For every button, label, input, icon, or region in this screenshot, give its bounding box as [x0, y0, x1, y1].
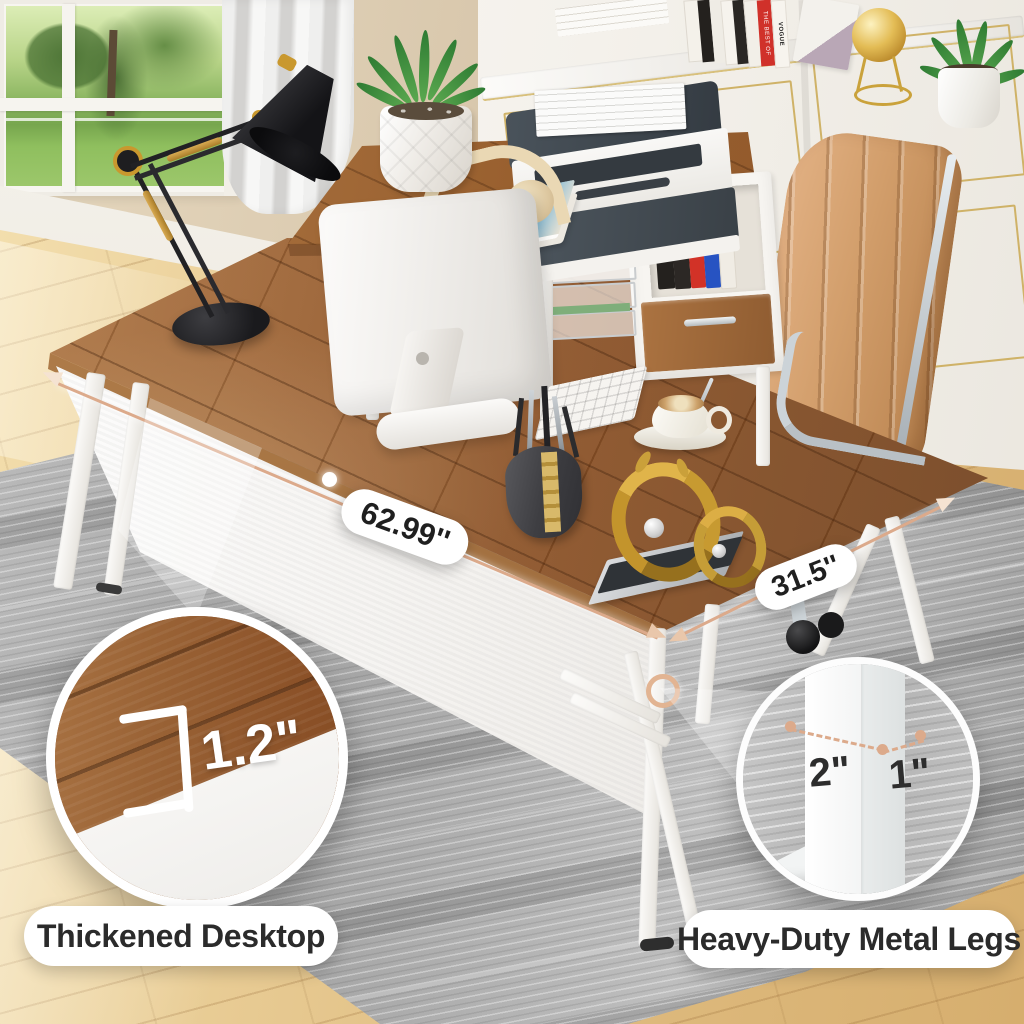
chair-caster-wheel-icon [818, 612, 844, 638]
thickened-desktop-label: Thickened Desktop [37, 918, 325, 955]
gold-globe-decor-icon [852, 8, 906, 62]
storage-leg [756, 366, 770, 466]
fence-line [6, 118, 222, 121]
legs-callout-circle: 2" 1" [736, 657, 980, 901]
globe-stand-ring [854, 84, 912, 106]
desk-plant-soil [388, 102, 464, 120]
heavy-duty-legs-badge: Heavy-Duty Metal Legs [682, 910, 1016, 968]
coffee-latte [658, 395, 704, 412]
storage-drawer [641, 294, 776, 373]
product-photo-scene: THE BEST OF VOGUE [0, 0, 1024, 1024]
leg-side-width-value: 1" [887, 750, 932, 798]
chair-caster-wheel-icon [786, 620, 820, 654]
desk-plant [360, 26, 490, 196]
leaning-book [793, 0, 860, 70]
plant-pot [938, 68, 1000, 128]
heavy-duty-legs-label: Heavy-Duty Metal Legs [677, 921, 1021, 958]
cup-handle [706, 406, 732, 434]
sculpture-pearl [644, 518, 664, 538]
window-mullion-horizontal [0, 98, 238, 111]
plant-top-right [916, 12, 1024, 132]
leg-front-width-value: 2" [807, 748, 852, 796]
monitor-cable-hole [416, 352, 429, 365]
sculpture-pearl [712, 544, 726, 558]
printer-paper [534, 83, 686, 137]
thickened-desktop-badge: Thickened Desktop [24, 906, 338, 966]
line-glow-dot [322, 472, 337, 487]
thickness-callout-circle: 1.2" [46, 607, 348, 909]
